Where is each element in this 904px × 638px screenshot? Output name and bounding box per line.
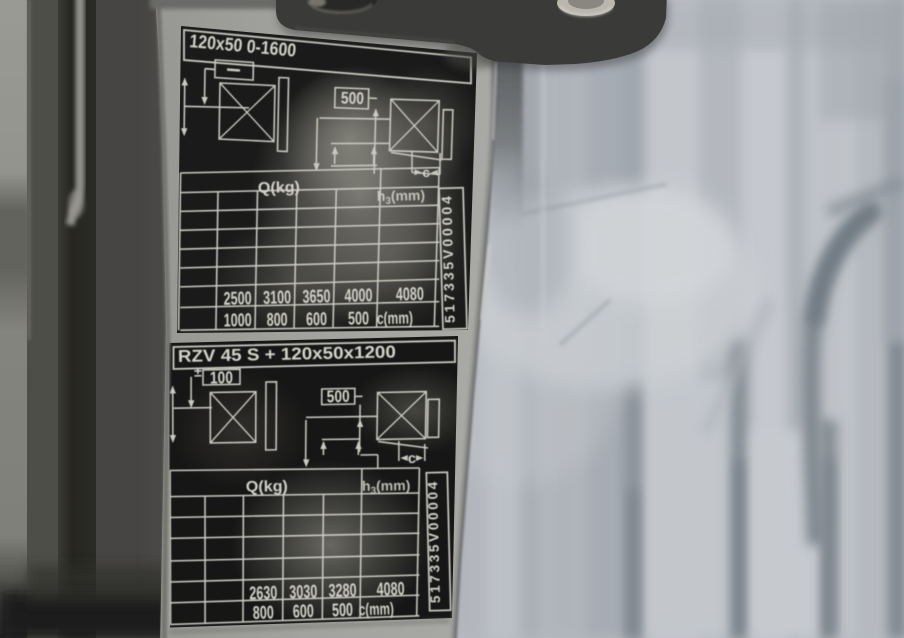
svg-text:800: 800 (252, 601, 274, 623)
svg-text:4080: 4080 (376, 578, 405, 600)
svg-text:500: 500 (348, 307, 369, 328)
svg-text:600: 600 (306, 308, 327, 329)
svg-text:±: ± (194, 363, 202, 379)
svg-text:4000: 4000 (344, 284, 373, 306)
svg-text:c(mm): c(mm) (377, 308, 413, 328)
svg-text:2500: 2500 (223, 287, 251, 309)
svg-text:100: 100 (210, 368, 233, 387)
svg-text:2630: 2630 (249, 582, 278, 604)
svg-text:Q(kg): Q(kg) (258, 179, 300, 197)
svg-text:c(mm): c(mm) (358, 599, 394, 619)
svg-text:500: 500 (341, 88, 365, 108)
svg-text:Q(kg): Q(kg) (246, 478, 288, 496)
svg-text:4080: 4080 (396, 283, 425, 305)
svg-text:600: 600 (292, 600, 314, 622)
svg-text:800: 800 (266, 309, 287, 330)
svg-text:3100: 3100 (263, 286, 292, 308)
svg-text:517335V00004: 517335V00004 (425, 479, 443, 603)
svg-text:500: 500 (327, 387, 350, 406)
svg-text:3030: 3030 (289, 580, 318, 602)
svg-text:1000: 1000 (224, 309, 252, 330)
svg-text:3280: 3280 (328, 579, 357, 601)
svg-text:500: 500 (332, 599, 354, 621)
svg-text:c: c (408, 451, 416, 467)
svg-text:3650: 3650 (302, 285, 331, 307)
